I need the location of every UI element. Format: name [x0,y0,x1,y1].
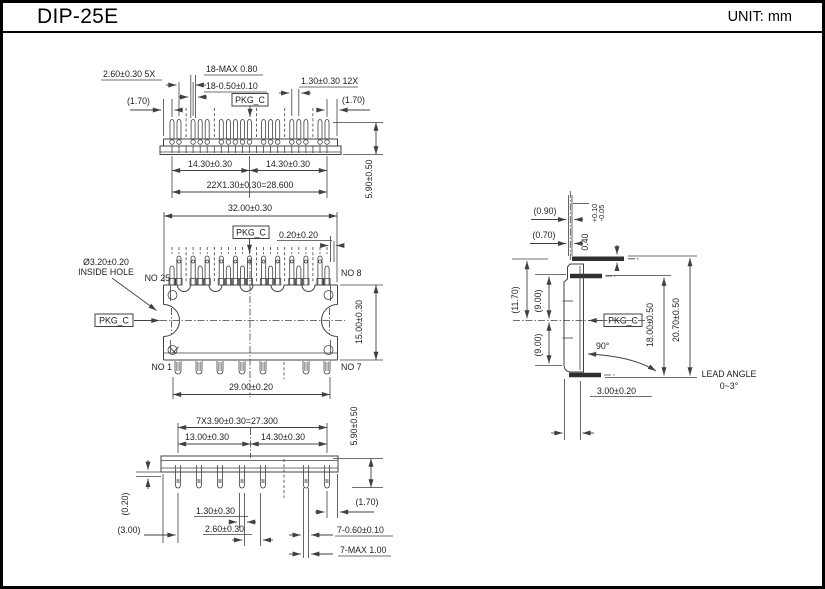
dim-590-top: 5.90±0.50 [364,159,374,198]
plan-view-pins-top [169,247,330,285]
plan-view-dimensions-right: 15.00±0.30 [340,285,383,360]
dim-1430-right: 14.30±0.30 [266,159,310,169]
ref-900-lower: (9.00) [533,333,543,356]
dim-2900: 29.00±0.20 [229,382,273,392]
bottom-view-dimensions: 5.90±0.50 (0.20) (3.00) 1.30±0.30 2.60±0… [118,406,393,556]
angle-90: 90° [596,341,609,351]
plan-view-body [135,246,345,397]
dim-1430-left: 14.30±0.30 [188,159,232,169]
dim-1300: 13.00±0.30 [185,432,229,442]
top-view-dimensions: 2.60±0.30 5X 18-MAX 0.80 18-0.50±0.10 PK… [101,64,383,199]
side-view-dimensions: (0.90) (0.70) 0.40 +0.10 -0.05 (11.70) (… [510,204,757,440]
plan-view-pins-bottom [175,361,330,379]
ref-170-right: (1.70) [342,95,365,105]
ref-070: (0.70) [533,230,556,240]
plan-view-callouts: NO 25 NO 8 NO 1 NO 7 Ø3.20±0.20 INSIDE H… [78,257,362,372]
lead-angle-label: LEAD ANGLE [702,369,757,379]
dim-300: 3.00±0.20 [597,386,636,396]
dim-18-050: 18-0.50±0.10 [206,81,258,91]
pin-label-no1: NO 1 [151,362,172,372]
pkg-c-label-top: PKG_C [235,95,265,105]
corner-hole-top-right [324,291,333,300]
dim-040: 0.40 [580,233,590,250]
dim-22x: 22X1.30±0.30=28.600 [207,180,294,190]
tolerance-minus: -0.05 [597,205,606,222]
lead-angle-value: 0~3° [720,381,738,391]
dim-130-12x: 1.30±0.30 12X [301,76,358,86]
dim-590-bottom: 5.90±0.50 [349,406,359,445]
ref-900-upper: (9.00) [533,289,543,312]
page-frame: DIP-25E UNIT: mm [0,0,825,589]
ref-170-left: (1.70) [127,96,150,106]
page-title: DIP-25E [37,5,118,29]
bottom-view-body [161,456,338,558]
dim-020: 0.20±0.20 [279,230,318,240]
bottom-view-dimensions-top: 7X3.90±0.30=27.300 13.00±0.30 14.30±0.30 [178,416,327,458]
pin-label-no8: NO 8 [341,268,362,278]
hole-diameter-label: Ø3.20±0.20 [83,257,129,267]
top-view: 2.60±0.30 5X 18-MAX 0.80 18-0.50±0.10 PK… [101,64,383,199]
dim-1500: 15.00±0.30 [354,300,364,344]
title-bar: DIP-25E UNIT: mm [3,3,822,33]
dim-1430-bottom: 14.30±0.30 [261,432,305,442]
bottom-view: 7X3.90±0.30=27.300 13.00±0.30 14.30±0.30 [118,406,393,558]
pkg-c-label-plan: PKG_C [236,228,266,238]
plan-view: 32.00±0.30 PKG_C 0.20±0.20 [78,203,383,399]
dim-7x390: 7X3.90±0.30=27.300 [196,416,278,426]
plan-view-dimension-2900: 29.00±0.20 [173,377,330,399]
top-view-body [160,139,341,155]
dim-7-060: 7-0.60±0.10 [337,525,384,535]
ref-170-bottom: (1.70) [356,497,379,507]
pkg-c-label-left: PKG_C [99,316,129,326]
drawing-canvas: 2.60±0.30 5X 18-MAX 0.80 18-0.50±0.10 PK… [3,33,822,584]
unit-label: UNIT: mm [728,9,792,25]
dim-1800: 18.00±0.50 [645,303,655,347]
corner-hole-top-left [168,291,177,300]
ref-1170: (11.70) [510,286,520,313]
dim-3200: 32.00±0.30 [228,203,272,213]
pin-label-no7: NO 7 [341,362,362,372]
pkg-c-label-side: PKG_C [608,316,638,326]
dim-7-max: 7-MAX 1.00 [340,545,387,555]
dim-18-max: 18-MAX 0.80 [206,64,257,74]
ref-300: (3.00) [118,525,141,535]
ref-020: (0.20) [120,492,130,515]
dim-260-5x: 2.60±0.30 5X [103,69,155,79]
dim-130-bottom: 1.30±0.30 [196,506,235,516]
dim-2070: 20.70±0.50 [671,298,681,342]
side-view: (0.90) (0.70) 0.40 +0.10 -0.05 (11.70) (… [510,191,757,440]
dim-260-bottom: 2.60±0.30 [205,524,244,534]
inside-hole-label: INSIDE HOLE [78,267,134,277]
ref-090: (0.90) [534,206,557,216]
pin-label-no25: NO 25 [145,273,171,283]
